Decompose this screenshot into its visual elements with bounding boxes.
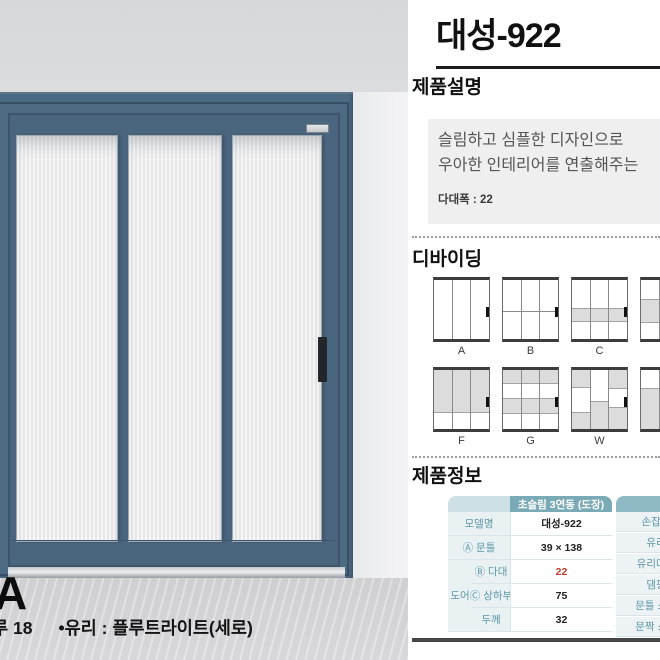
- spec-right-label-glass-finish: 유리마감: [616, 554, 660, 574]
- section-heading-dividing: 디바이딩: [412, 244, 482, 271]
- handle-icon: [624, 397, 628, 407]
- dividing-option-f: F: [433, 367, 490, 449]
- section-heading-product-info: 제품정보: [412, 461, 482, 488]
- spec-table: 초슬림 3연동 (도장) 모델명 대성-922 Ⓐ 문틀 39 × 138 도어…: [448, 496, 612, 632]
- handle-icon: [555, 307, 559, 317]
- door-photo: A 루 18 •유리 : 플루트라이트(세로): [0, 0, 408, 660]
- spec-value-model: 대성-922: [510, 512, 612, 536]
- page-title: 대성-922: [436, 8, 561, 57]
- dividing-option-b: B: [502, 277, 559, 359]
- spec-value-dadae: 22: [510, 560, 612, 584]
- dividing-option-c: C: [571, 277, 628, 359]
- dividing-option-d-cropped: [640, 277, 660, 359]
- spec-table-right-cropped: 손잡이 유리 유리마감 댐핑 문틀 소재 문짝 소재: [616, 496, 660, 638]
- handle-icon: [486, 397, 490, 407]
- spec-right-label-damping: 댐핑: [616, 575, 660, 595]
- spec-value-topbottom: 75: [510, 584, 612, 608]
- description-note: 다대폭 : 22: [438, 191, 493, 207]
- caption-glass: •유리 : 플루트라이트(세로): [58, 615, 252, 640]
- spec-label-model: 모델명: [448, 512, 510, 536]
- spec-right-label-glass: 유리: [616, 533, 660, 553]
- section-heading-description: 제품설명: [412, 72, 482, 99]
- spec-label-topbottom: Ⓒ 상하부: [472, 584, 510, 608]
- spec-value-thickness: 32: [510, 608, 612, 632]
- catalog-page: A 루 18 •유리 : 플루트라이트(세로) 대성-922 제품설명 슬림하고…: [0, 0, 660, 660]
- handle-icon: [555, 397, 559, 407]
- description-text: 슬림하고 심플한 디자인으로 우아한 인테리어를 연출해주는: [438, 129, 638, 179]
- bottom-rail-line: [12, 540, 336, 541]
- door-opening: [8, 113, 340, 567]
- bottom-rule: [412, 638, 660, 642]
- spec-value-frame: 39 × 138: [510, 536, 612, 560]
- dashed-divider-1: [412, 236, 660, 238]
- spec-table-corner: [448, 496, 510, 512]
- info-panel: 대성-922 제품설명 슬림하고 심플한 디자인으로 우아한 인테리어를 연출해…: [408, 0, 660, 660]
- spec-right-label-frame-material: 문틀 소재: [616, 596, 660, 616]
- door-sill-track: [8, 567, 345, 578]
- spec-label-frame: Ⓐ 문틀: [448, 536, 510, 560]
- wall-right-of-door: [353, 92, 408, 578]
- spec-right-label-handle: 손잡이: [616, 512, 660, 532]
- brand-plate-icon: [306, 124, 329, 133]
- title-rule: [436, 66, 660, 69]
- dividing-option-a: A: [433, 277, 490, 359]
- description-box: 슬림하고 심플한 디자인으로 우아한 인테리어를 연출해주는 다대폭 : 22: [428, 119, 660, 224]
- door-glass-panel-1: [16, 135, 118, 542]
- handle-icon: [486, 307, 490, 317]
- dividing-row-2: F G: [433, 367, 660, 449]
- spec-label-dadae: Ⓑ 다대: [472, 560, 510, 584]
- caption-color: 루 18: [0, 615, 32, 640]
- door-glass-panel-3: [232, 135, 322, 542]
- spec-label-thickness: 두께: [472, 608, 510, 632]
- variant-letter: A: [0, 566, 27, 620]
- dividing-option-cropped: [640, 367, 660, 449]
- photo-caption: 루 18 •유리 : 플루트라이트(세로): [0, 615, 408, 640]
- dividing-row-1: A B C: [433, 277, 660, 359]
- spec-table-right-header: [616, 496, 660, 512]
- handle-icon: [624, 307, 628, 317]
- spec-right-label-door-material: 문짝 소재: [616, 617, 660, 637]
- spec-group-door: 도어: [448, 560, 472, 632]
- door-glass-panel-2: [128, 135, 222, 542]
- spec-table-header: 초슬림 3연동 (도장): [510, 496, 612, 512]
- door-handle: [318, 337, 327, 382]
- dividing-option-g: G: [502, 367, 559, 449]
- dividing-option-w: W: [571, 367, 628, 449]
- dashed-divider-2: [412, 456, 660, 458]
